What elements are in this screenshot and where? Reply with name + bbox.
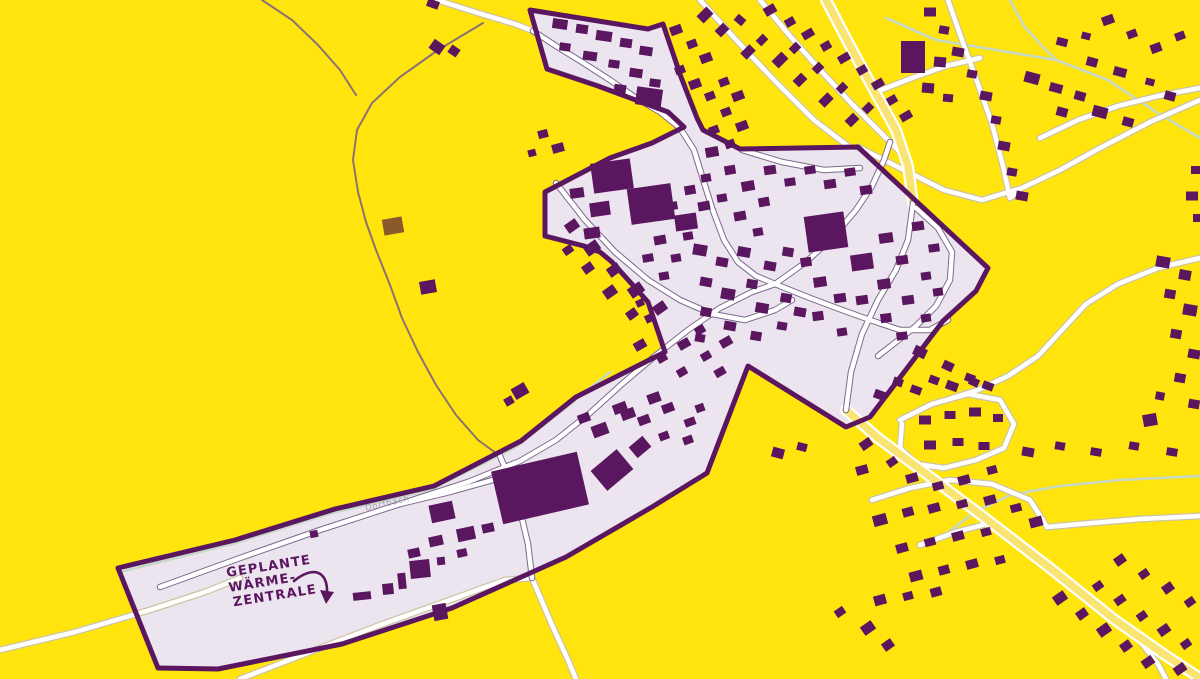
map-canvas[interactable]: GEPLANTE WÄRME- ZENTRALE Dorfbach — [0, 0, 1200, 679]
map-view[interactable]: GEPLANTE WÄRME- ZENTRALE Dorfbach — [0, 0, 1200, 679]
